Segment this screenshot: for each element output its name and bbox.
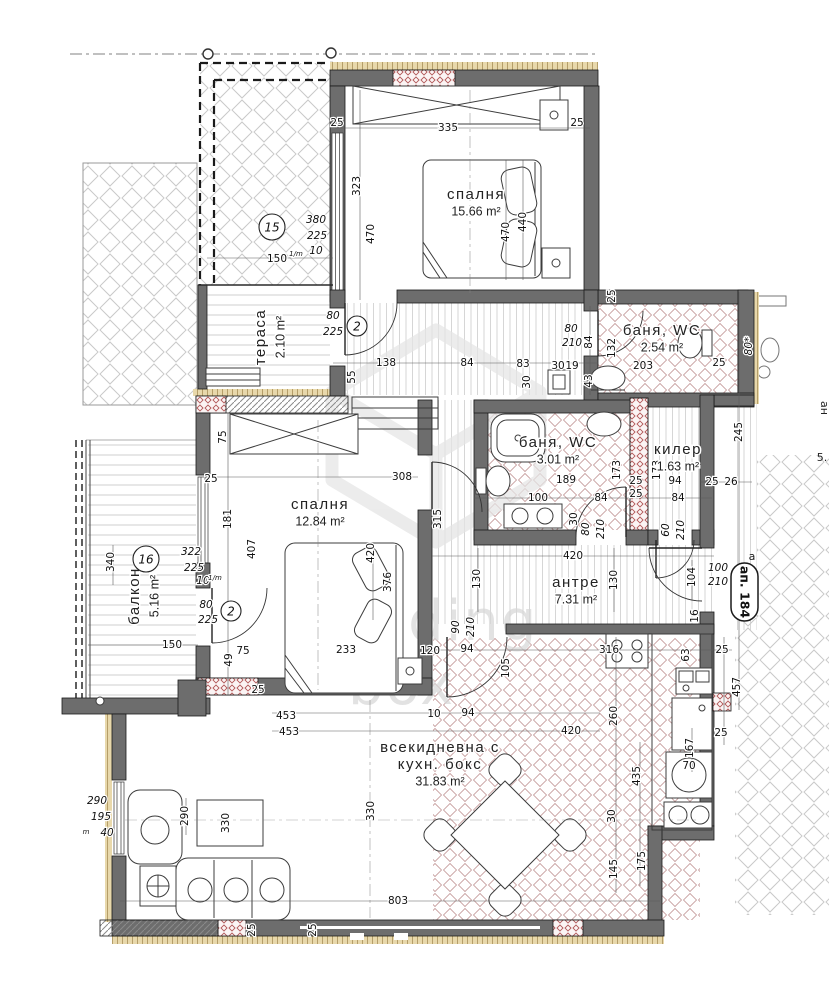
shaft xyxy=(713,693,731,711)
corridor-tiles xyxy=(735,618,829,915)
dimension-label: 25 xyxy=(606,289,618,302)
dimension-label: 25 xyxy=(712,357,725,369)
insulation xyxy=(330,62,598,70)
dimension-label: 420 xyxy=(365,543,377,563)
dimension-label: 80* xyxy=(743,337,755,356)
dimension-label: 105 xyxy=(500,658,512,678)
neighbor-label: 5. xyxy=(817,451,828,464)
nightstand-icon xyxy=(398,658,422,684)
dimension-label: 380 xyxy=(306,214,326,226)
nightstand-icon xyxy=(542,248,570,278)
radiator-icon xyxy=(206,368,260,386)
dimension-label: 335 xyxy=(438,122,458,134)
dimension-label: 470 xyxy=(500,222,512,242)
dimension-label: 49 xyxy=(223,653,235,666)
insulation xyxy=(193,389,343,396)
kitchen-counter-wall xyxy=(506,624,714,634)
dimension-label: 130 xyxy=(608,570,620,590)
room-label: спалня xyxy=(447,186,505,203)
dimension-label: 25 xyxy=(715,644,728,656)
roof-hatch-left xyxy=(83,163,197,405)
dimension-label: 60 xyxy=(660,523,672,537)
dimension-label: 210 xyxy=(562,337,582,349)
axis-letter: а xyxy=(749,550,756,563)
dimension-label: 173 xyxy=(611,460,623,480)
base-cabinet-icon xyxy=(664,802,712,828)
dimension-label: 290 xyxy=(87,795,107,807)
dimension-label: 84 xyxy=(583,335,595,349)
dimension-label: 203 xyxy=(633,360,653,372)
dimension-label: 330 xyxy=(220,813,232,833)
shaft xyxy=(630,398,648,540)
dimension-label: 225 xyxy=(198,614,218,626)
room-label: 31.83 m² xyxy=(415,774,464,788)
room-label: 1.63 m² xyxy=(657,459,699,473)
room-label: всекидневна с xyxy=(380,739,500,756)
window-band xyxy=(300,926,540,929)
axis-marker-icon xyxy=(326,48,336,58)
room-label: баня, WC xyxy=(623,322,701,339)
dimension-label: 55 xyxy=(346,370,358,383)
room-label: килер xyxy=(654,441,702,458)
room-label: 5.16 m² xyxy=(147,575,161,617)
dimension-label: 453 xyxy=(279,726,299,738)
dimension-label: 260 xyxy=(608,706,620,726)
dimension-label: 1/m xyxy=(208,574,222,582)
tag-number: 15 xyxy=(264,221,279,235)
dimension-label: 104 xyxy=(686,567,698,587)
room-label: кухн. бокс xyxy=(398,756,483,773)
dimension-label: 440 xyxy=(517,212,529,232)
dimension-label: 803 xyxy=(388,895,408,907)
tag-number: 16 xyxy=(138,553,154,567)
dimension-label: m xyxy=(83,828,90,836)
dimension-label: 25 xyxy=(330,117,343,129)
dimension-label: 210 xyxy=(595,519,607,539)
dimension-label: 100 xyxy=(708,562,728,574)
axis-marker-icon xyxy=(203,49,213,59)
dimension-label: 94 xyxy=(461,707,475,719)
room-label: тераса xyxy=(252,309,269,366)
dimension-label: 120 xyxy=(420,645,440,657)
armchair-icon xyxy=(128,790,182,864)
kitchen-sink-icon xyxy=(676,668,712,694)
dimension-label: 25 xyxy=(629,488,642,500)
dimension-label: 30 xyxy=(551,360,564,372)
dimension-label: 376 xyxy=(382,572,394,592)
dimension-label: 84 xyxy=(594,492,608,504)
dimension-label: 435 xyxy=(631,766,643,786)
dimension-label: 316 xyxy=(599,644,619,656)
neighbor-label: ан xyxy=(818,401,829,415)
window xyxy=(114,782,124,854)
room-label: 12.84 m² xyxy=(295,514,344,528)
dimension-label: 181 xyxy=(222,509,234,529)
dimension-label: 323 xyxy=(351,176,363,196)
dimension-label: 322 xyxy=(181,546,201,558)
dimension-label: 100 xyxy=(528,492,548,504)
dimension-label: 43 xyxy=(583,374,595,387)
dimension-label: 80 xyxy=(199,599,213,611)
sink-icon xyxy=(587,412,621,436)
dimension-label: 25 xyxy=(251,684,264,696)
dimension-label: 94 xyxy=(668,475,682,487)
floor-plan-page: building box xyxy=(0,0,829,1000)
dimension-label: 189 xyxy=(556,474,576,486)
room-label: антре xyxy=(552,574,600,591)
dimension-label: 75 xyxy=(217,430,229,443)
dimension-label: 130 xyxy=(471,569,483,589)
cushion-icon xyxy=(224,878,248,902)
dimension-label: 10 xyxy=(427,708,440,720)
dimension-label: 132 xyxy=(606,338,618,358)
room-label: спалня xyxy=(291,496,349,513)
vent-shaft-icon xyxy=(548,370,570,394)
dimension-label: 420 xyxy=(561,725,581,737)
dimension-label: 225 xyxy=(307,230,327,242)
dimension-label: 175 xyxy=(636,851,648,871)
dimension-label: 63 xyxy=(680,648,692,661)
dimension-label: 10 xyxy=(309,245,323,257)
dimension-label: 84 xyxy=(460,357,474,369)
dimension-label: 25 xyxy=(570,117,583,129)
dimension-label: 245 xyxy=(733,422,745,442)
dimension-label: 84 xyxy=(671,492,685,504)
cushion-icon xyxy=(260,878,284,902)
corridor-tiles xyxy=(757,455,829,620)
dimension-label: 308 xyxy=(392,471,412,483)
tag-number: 2 xyxy=(353,320,361,334)
room-label: 2.10 m² xyxy=(273,316,287,358)
dimension-label: 75 xyxy=(236,645,249,657)
dimension-label: 30 xyxy=(606,809,618,822)
dimension-label: 407 xyxy=(246,539,258,559)
dimension-label: 225 xyxy=(184,562,204,574)
sink-icon xyxy=(591,366,625,390)
insulation xyxy=(112,936,664,944)
dimension-label: 25 xyxy=(629,475,642,487)
dimension-label: 26 xyxy=(724,476,738,488)
drain-icon xyxy=(96,697,104,705)
cushion-icon xyxy=(188,878,212,902)
dimension-label: 94 xyxy=(460,643,474,655)
dimension-label: 233 xyxy=(336,644,356,656)
dimension-label: 453 xyxy=(276,710,296,722)
dimension-label: 25 xyxy=(705,476,718,488)
toilet-icon xyxy=(702,330,712,356)
dimension-label: 83 xyxy=(516,358,529,370)
dimension-label: 30 xyxy=(568,512,580,525)
dimension-label: 19 xyxy=(565,360,578,372)
dimension-label: 150 xyxy=(267,253,287,265)
room-label: 7.31 m² xyxy=(555,592,597,606)
room-label: баня, WC xyxy=(519,434,597,451)
dimension-label: 25 xyxy=(246,923,258,936)
dimension-label: 138 xyxy=(376,357,396,369)
dimension-label: 145 xyxy=(608,859,620,879)
room-label: 2.54 m² xyxy=(641,340,683,354)
dimension-label: 330 xyxy=(365,801,377,821)
dimension-label: 470 xyxy=(365,224,377,244)
dimension-label: 457 xyxy=(731,677,743,697)
apartment-badge-label: ап. 184 xyxy=(738,566,753,619)
dimension-label: 167 xyxy=(684,738,696,758)
dimension-label: 25 xyxy=(714,727,727,739)
dimension-label: 315 xyxy=(432,509,444,529)
floor-plan-svg: building box xyxy=(0,0,829,1000)
dimension-label: 210 xyxy=(675,520,687,540)
dimension-label: 30 xyxy=(521,375,533,388)
dimension-label: 210 xyxy=(708,576,728,588)
dimension-label: 340 xyxy=(105,552,117,572)
nightstand-icon xyxy=(540,100,568,130)
dimension-label: 225 xyxy=(323,326,343,338)
room-label: балкон xyxy=(126,567,143,625)
dimension-label: 195 xyxy=(91,811,111,823)
dimension-label: 80 xyxy=(564,323,578,335)
dimension-label: 90 xyxy=(450,620,462,634)
room-label: 15.66 m² xyxy=(451,204,500,218)
dimension-label: 150 xyxy=(162,639,182,651)
dimension-label: 210 xyxy=(465,617,477,637)
dimension-label: 70 xyxy=(682,760,695,772)
dimension-label: 80 xyxy=(326,310,340,322)
dimension-label: 25 xyxy=(307,923,319,936)
room-label: 3.01 m² xyxy=(537,452,579,466)
tag-number: 2 xyxy=(227,605,235,619)
dimension-label: 80 xyxy=(580,522,592,536)
window xyxy=(332,133,343,293)
dimension-label: 16 xyxy=(689,609,701,623)
dimension-label: 25 xyxy=(204,473,217,485)
dimension-label: 40 xyxy=(100,827,114,839)
dimension-label: 1/m xyxy=(289,250,303,258)
dimension-label: 290 xyxy=(179,806,191,826)
dimension-label: 420 xyxy=(563,550,583,562)
